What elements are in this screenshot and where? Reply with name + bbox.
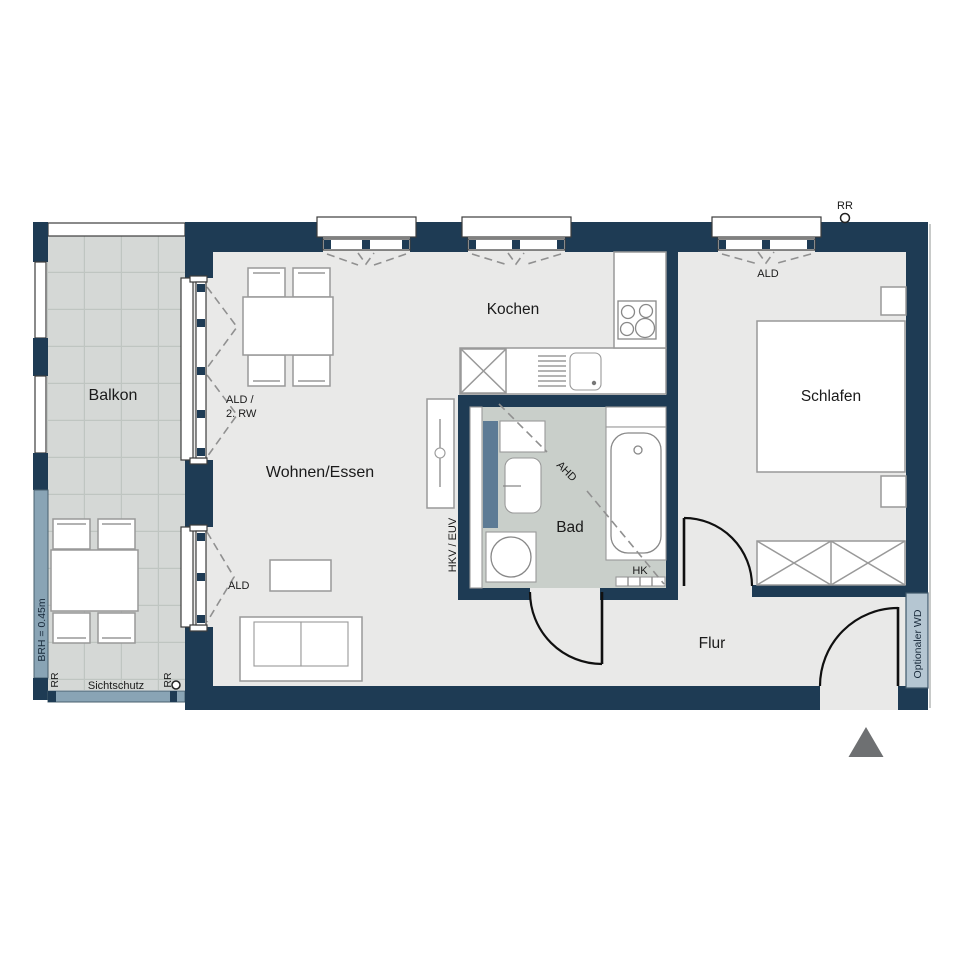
- railing-glass: [35, 376, 46, 453]
- window-hinge: [469, 240, 476, 249]
- floor-plan-page: Balkon Wohnen/Essen Kochen Schlafen Bad …: [0, 0, 960, 960]
- window-hinge: [197, 367, 205, 375]
- coffee-table: [270, 560, 331, 591]
- window-end-cap: [190, 625, 207, 631]
- entrance-opening: [820, 686, 898, 710]
- railing-post: [33, 338, 48, 376]
- window-hinge: [197, 615, 205, 623]
- duct-panel: [483, 421, 498, 528]
- screen-end-post: [48, 691, 56, 702]
- annotation-ald-living: ALD: [228, 580, 249, 592]
- annotation-ald-bedroom: ALD: [757, 268, 778, 280]
- balcony-table: [51, 550, 138, 611]
- nightstand: [881, 476, 906, 507]
- window-hinge: [557, 240, 564, 249]
- rr-marker-roof: [841, 214, 850, 223]
- window-hinge: [197, 573, 205, 581]
- screen-end-post: [170, 691, 177, 702]
- window-end-cap: [190, 458, 207, 464]
- floor-plan-canvas: Balkon Wohnen/Essen Kochen Schlafen Bad …: [0, 0, 960, 960]
- room-label-bad: Bad: [556, 519, 584, 536]
- window-sill: [317, 217, 416, 237]
- window-hinge: [719, 240, 726, 249]
- nightstand: [881, 287, 906, 315]
- annotation-rr-roof: RR: [837, 200, 853, 212]
- privacy-screen-band: [48, 691, 185, 702]
- bath-wall-left: [458, 395, 470, 600]
- annotation-sichtschutz: Sichtschutz: [88, 680, 144, 692]
- left-wall-pier: [185, 460, 213, 527]
- bottom-right-corner: [898, 686, 928, 710]
- tub-shelf: [606, 407, 666, 427]
- window-hinge: [197, 284, 205, 292]
- top-left-corner: [185, 250, 213, 278]
- hkv-cabinet-knob: [435, 448, 445, 458]
- railing-glass: [35, 262, 46, 338]
- window-sill: [181, 278, 193, 460]
- window-hinge: [197, 319, 205, 327]
- railing-post: [33, 453, 48, 490]
- window-hinge: [762, 240, 770, 249]
- window-sill: [181, 527, 193, 627]
- room-label-balkon: Balkon: [89, 387, 138, 404]
- annotation-optionaler-wd: Optionaler WD: [912, 609, 924, 678]
- bottom-wall: [185, 686, 820, 710]
- annotation-hkv-euv: HKV / EUV: [447, 517, 459, 572]
- railing-post: [33, 222, 48, 262]
- window-hinge: [807, 240, 814, 249]
- annotation-ald-rw-2: 2. RW: [226, 408, 257, 420]
- dining-table: [243, 297, 333, 355]
- window-hinge: [197, 448, 205, 456]
- drainboard: [538, 356, 566, 386]
- bath-wall-top: [458, 395, 678, 407]
- installation-wall: [470, 407, 482, 588]
- bedroom-bottom-wall: [752, 585, 906, 597]
- railing-post: [33, 678, 48, 700]
- window-hinge: [512, 240, 520, 249]
- window-end-cap: [190, 276, 207, 282]
- top-wall: [815, 222, 906, 252]
- window-hinge: [197, 533, 205, 541]
- sofa-cushion: [301, 622, 348, 666]
- window-end-cap: [190, 525, 207, 531]
- window-hinge: [402, 240, 409, 249]
- top-wall: [185, 222, 323, 252]
- annotation-ald-rw-1: ALD /: [226, 394, 254, 406]
- window-sill: [462, 217, 571, 237]
- bedroom: [757, 287, 906, 585]
- window-hinge: [197, 410, 205, 418]
- annotation-brh: BRH = 0.45m: [36, 598, 48, 662]
- top-wall: [410, 222, 468, 252]
- washing-machine: [486, 532, 536, 582]
- sofa-cushion: [254, 622, 301, 666]
- window-hinge: [324, 240, 331, 249]
- room-label-schlafen: Schlafen: [801, 388, 861, 405]
- annotation-hk: HK: [632, 565, 648, 577]
- bath-wall-bottom: [458, 588, 530, 600]
- balcony-top-rail: [48, 223, 185, 236]
- top-wall: [565, 222, 718, 252]
- bedroom-partition-wall: [666, 250, 678, 597]
- room-label-kochen: Kochen: [487, 301, 540, 318]
- toilet-cistern: [500, 421, 545, 452]
- sink-drain: [592, 381, 596, 385]
- kitchen-sink: [570, 353, 601, 390]
- entrance-triangle-marker: [849, 727, 884, 757]
- annotation-rr-balcony-right: RR: [162, 672, 174, 688]
- annotation-rr-balcony-left: RR: [49, 672, 61, 688]
- room-label-flur: Flur: [699, 635, 726, 652]
- room-label-wohnen-essen: Wohnen/Essen: [266, 464, 374, 481]
- window-sill: [712, 217, 821, 237]
- right-wall: [906, 222, 928, 593]
- left-wall-bottom: [185, 627, 213, 710]
- window-hinge: [362, 240, 370, 249]
